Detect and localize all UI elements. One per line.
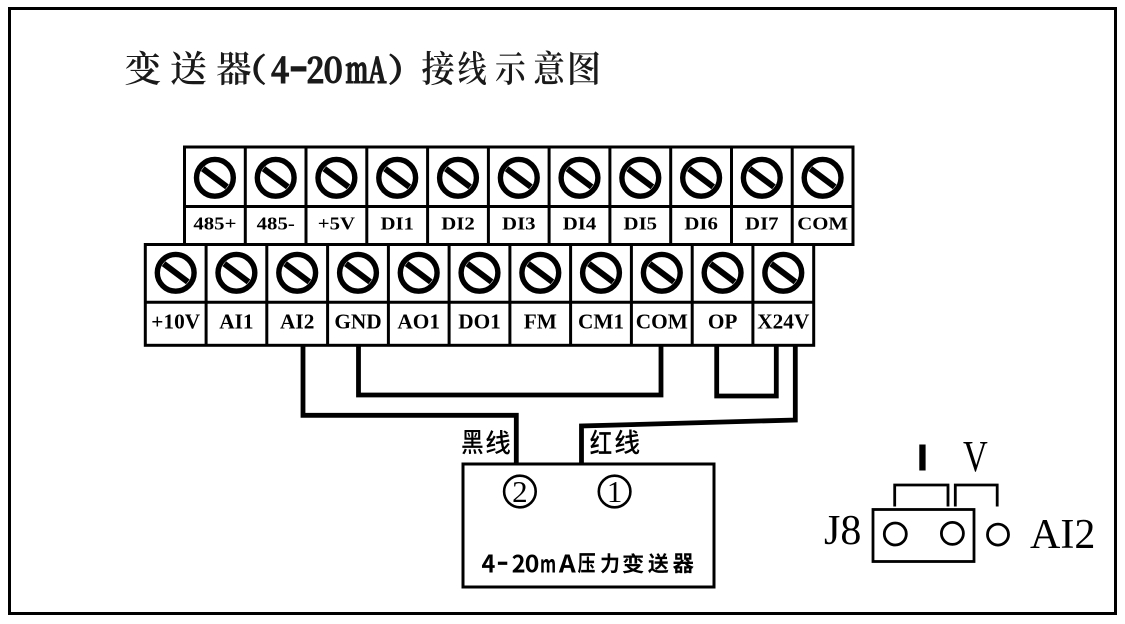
- svg-text:COM: COM: [797, 215, 848, 235]
- svg-text:AO1: AO1: [397, 310, 440, 334]
- svg-text:J8: J8: [824, 508, 861, 554]
- svg-text:DI1: DI1: [380, 215, 413, 235]
- svg-text:485+: 485+: [193, 215, 236, 235]
- svg-text:DI6: DI6: [684, 215, 718, 235]
- svg-text:+10V: +10V: [151, 310, 200, 334]
- svg-text:DI3: DI3: [502, 215, 536, 235]
- svg-text:FM: FM: [524, 310, 557, 334]
- svg-text:485-: 485-: [257, 215, 295, 235]
- svg-text:DI4: DI4: [563, 215, 597, 235]
- svg-text:OP: OP: [708, 310, 738, 334]
- svg-text:DI7: DI7: [745, 215, 779, 235]
- svg-text:V: V: [963, 432, 988, 481]
- svg-text:AI2: AI2: [1030, 512, 1095, 558]
- svg-text:2: 2: [512, 474, 528, 509]
- svg-text:AI2: AI2: [280, 310, 314, 334]
- svg-text:COM: COM: [636, 310, 688, 334]
- svg-text:X24V: X24V: [757, 310, 810, 334]
- svg-text:+5V: +5V: [318, 215, 355, 235]
- svg-text:GND: GND: [334, 310, 381, 334]
- svg-text:DI5: DI5: [624, 215, 658, 235]
- svg-text:DI2: DI2: [441, 215, 474, 235]
- svg-text:1: 1: [607, 474, 623, 509]
- svg-text:DO1: DO1: [458, 310, 501, 334]
- svg-text:AI1: AI1: [219, 310, 253, 334]
- svg-text:CM1: CM1: [578, 310, 624, 334]
